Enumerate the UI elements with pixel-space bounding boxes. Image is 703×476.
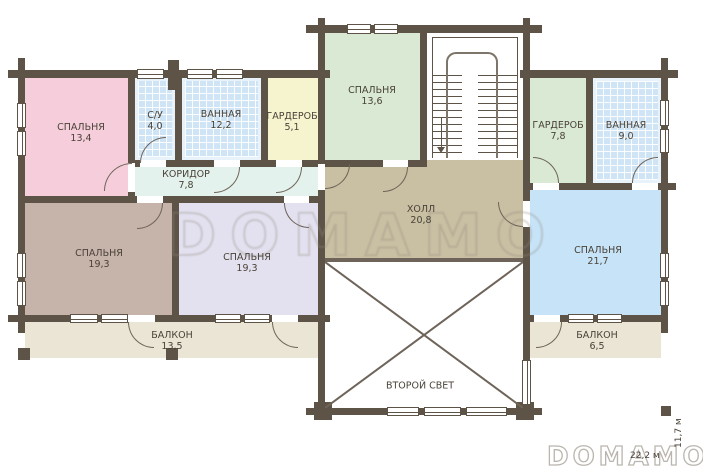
window bbox=[17, 103, 26, 128]
floor-plan: DOMAMO DOMAMO 22,2 м 11,7 м СПАЛЬНЯ13,4 … bbox=[0, 0, 703, 476]
wall-segment bbox=[420, 32, 427, 160]
wall-segment bbox=[175, 78, 182, 160]
window bbox=[660, 281, 669, 306]
door-opening bbox=[272, 315, 298, 322]
room-label-balcony-1: БАЛКОН13,5 bbox=[151, 330, 193, 352]
room-label-wardrobe-1: ГАРДЕРОБ5,1 bbox=[266, 111, 317, 133]
dimension-height-label: 11,7 м bbox=[674, 412, 684, 448]
window bbox=[374, 24, 398, 34]
room-label-bathroom-2: ВАННАЯ9,0 bbox=[606, 120, 646, 142]
room-floor-hall bbox=[427, 160, 523, 167]
balcony-post bbox=[18, 348, 30, 360]
stair-direction-line bbox=[441, 118, 442, 148]
room-label-hall: ХОЛЛ20,8 bbox=[407, 204, 435, 226]
window bbox=[660, 253, 669, 278]
window bbox=[187, 69, 213, 79]
window bbox=[17, 253, 26, 278]
room-label-balcony-2: БАЛКОН6,5 bbox=[576, 330, 618, 352]
room-label-bedroom-2: СПАЛЬНЯ13,6 bbox=[348, 85, 396, 107]
window bbox=[137, 69, 164, 79]
window bbox=[70, 314, 98, 323]
window bbox=[424, 407, 461, 416]
window bbox=[216, 69, 243, 79]
stair-direction-arrow bbox=[437, 147, 445, 153]
room-label-wardrobe-2: ГАРДЕРОБ7,8 bbox=[532, 120, 583, 142]
door-opening bbox=[214, 160, 240, 167]
door-opening bbox=[137, 196, 163, 203]
window bbox=[522, 360, 531, 405]
log-end-stub bbox=[168, 60, 179, 90]
window bbox=[660, 100, 669, 126]
window bbox=[101, 314, 128, 323]
window bbox=[466, 407, 507, 416]
window bbox=[597, 314, 622, 323]
door-opening bbox=[276, 160, 302, 167]
room-label-void: ВТОРОЙ СВЕТ bbox=[386, 381, 454, 392]
dimension-width-label: 22,2 м bbox=[630, 451, 660, 461]
window bbox=[660, 129, 669, 153]
door-opening bbox=[533, 183, 559, 190]
room-label-bedroom-5: СПАЛЬНЯ21,7 bbox=[574, 245, 622, 267]
dimension-marker-square bbox=[661, 406, 671, 416]
door-opening bbox=[383, 160, 408, 167]
window bbox=[244, 314, 270, 323]
window bbox=[347, 24, 371, 34]
door-opening bbox=[632, 183, 658, 190]
room-label-bedroom-3: СПАЛЬНЯ19,3 bbox=[75, 248, 123, 270]
door-opening bbox=[128, 315, 155, 322]
room-label-bedroom-1: СПАЛЬНЯ13,4 bbox=[57, 122, 105, 144]
door-opening bbox=[318, 164, 325, 190]
wall-segment bbox=[586, 78, 593, 190]
wall-segment bbox=[520, 70, 678, 78]
window bbox=[17, 281, 26, 306]
stair-railing bbox=[446, 52, 498, 158]
room-label-corridor: КОРИДОР7,8 bbox=[162, 169, 210, 191]
window bbox=[215, 314, 241, 323]
room-label-wc: С/У4,0 bbox=[147, 110, 163, 132]
window bbox=[387, 407, 419, 416]
window bbox=[17, 131, 26, 156]
window bbox=[568, 314, 594, 323]
room-label-bathroom-1: ВАННАЯ12,2 bbox=[201, 109, 241, 131]
room-label-bedroom-4: СПАЛЬНЯ19,3 bbox=[223, 252, 271, 274]
door-opening bbox=[534, 315, 560, 322]
